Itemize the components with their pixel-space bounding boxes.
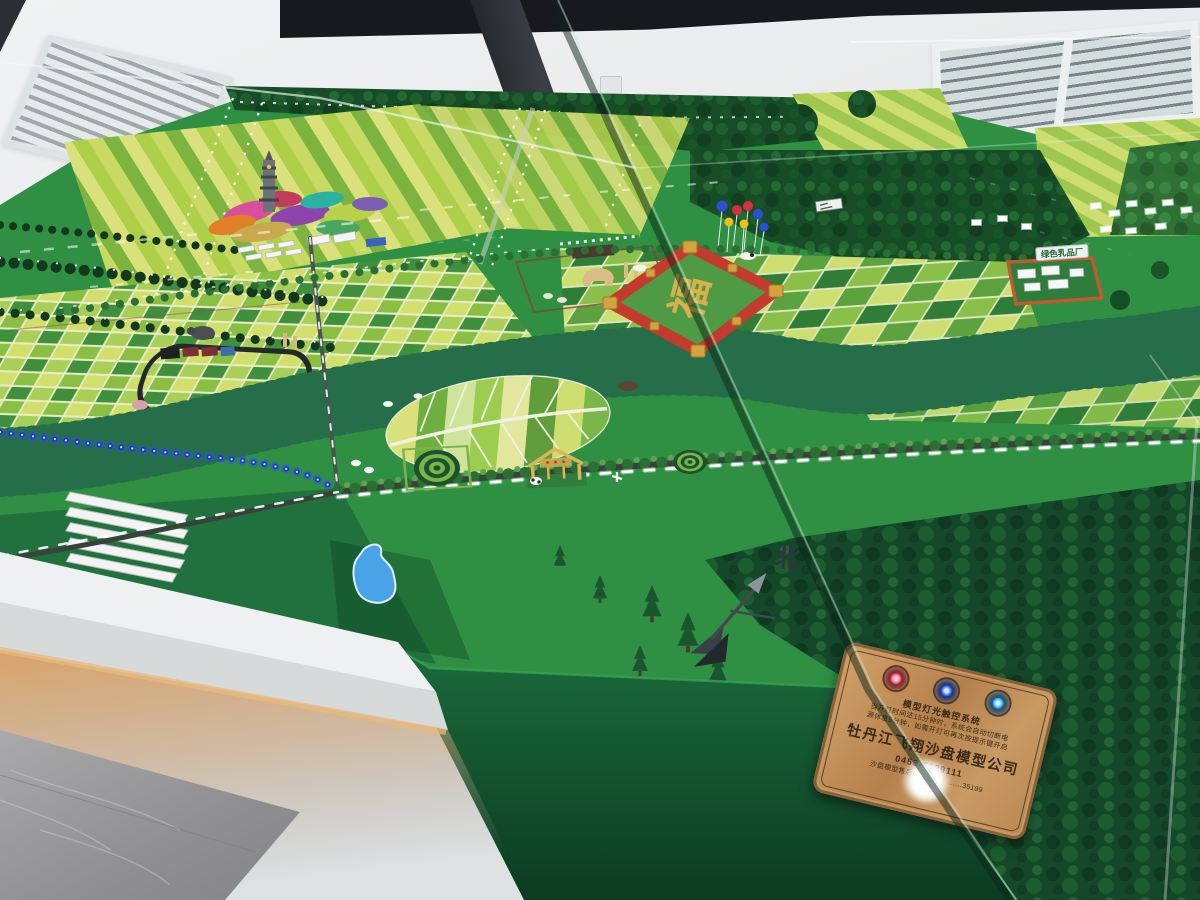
north-label: 北 — [773, 542, 801, 574]
spiral-garden-small — [673, 450, 706, 474]
showroom-photo: 福 绿色乳品厂 — [0, 0, 1200, 900]
plaque-blue-button — [931, 675, 964, 708]
wood-giraffe — [624, 262, 628, 278]
giraffe-figure — [283, 333, 287, 347]
plaque-cyan-button — [982, 687, 1015, 720]
plaque-red-button — [880, 662, 913, 695]
elephant-figure — [191, 326, 215, 340]
striped-fields-top-center — [410, 105, 690, 235]
pig-figure — [132, 400, 148, 410]
